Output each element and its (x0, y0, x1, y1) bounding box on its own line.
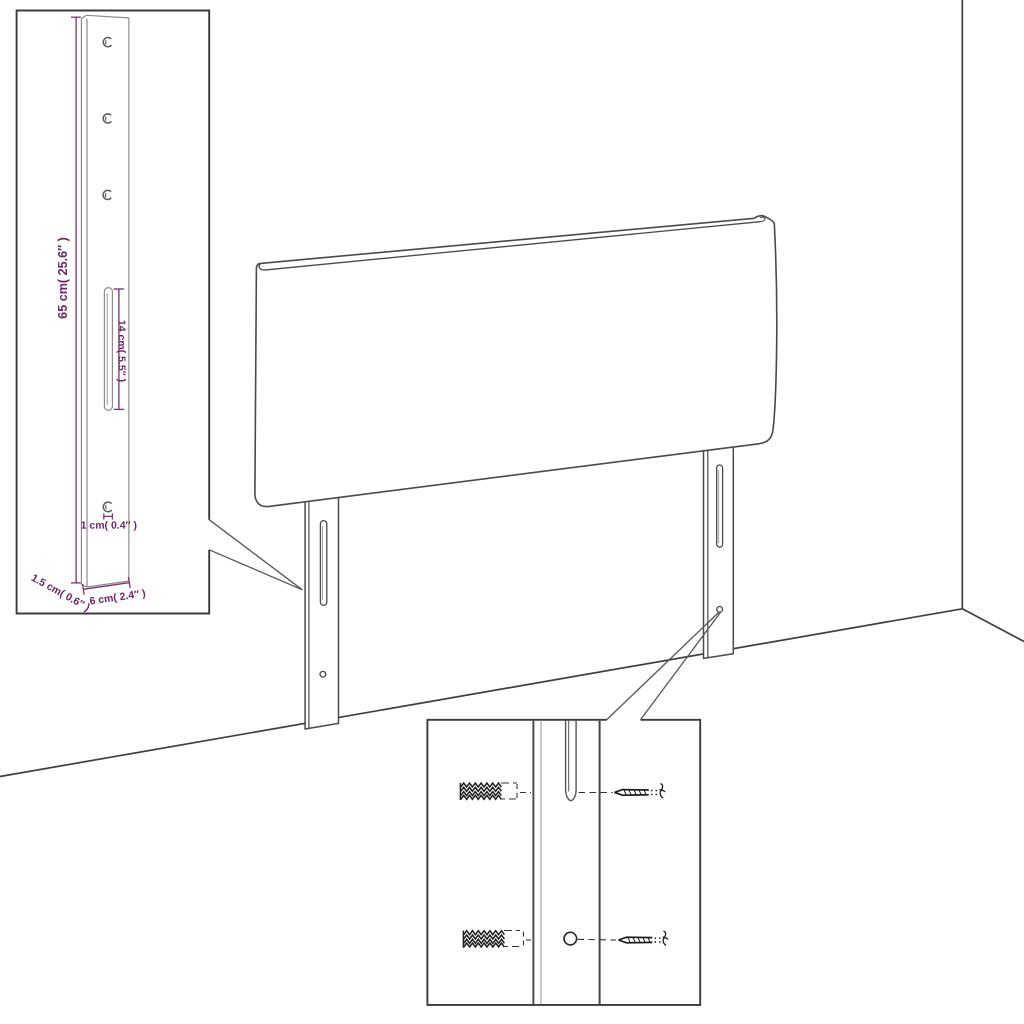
svg-text:14 cm( 5.5″ ): 14 cm( 5.5″ ) (116, 320, 128, 382)
svg-text:1 cm( 0.4″ ): 1 cm( 0.4″ ) (81, 520, 137, 532)
svg-text:65 cm( 25.6″ ): 65 cm( 25.6″ ) (56, 237, 70, 319)
